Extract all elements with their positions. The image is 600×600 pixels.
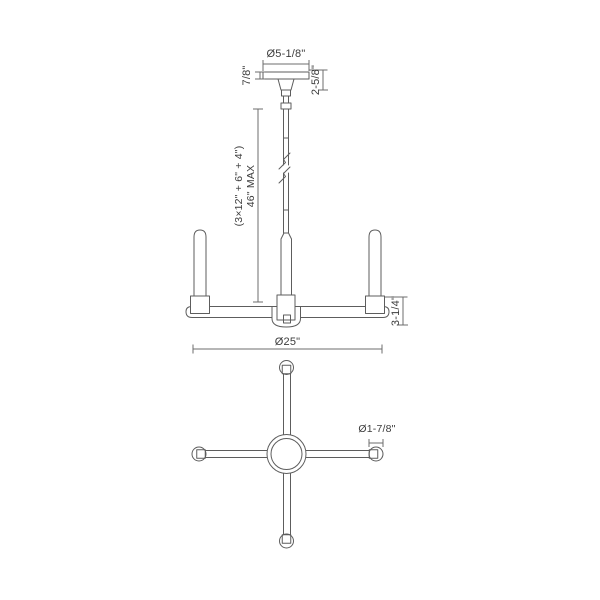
chandelier-dimension-drawing: Ø5-1/8" 7/8" 2-5/8" 46" MAX <box>0 0 600 600</box>
center-candle <box>281 233 292 295</box>
dim-arm-end-diameter: Ø1-7/8" <box>358 423 395 447</box>
arm-end-diameter-label: Ø1-7/8" <box>358 423 395 435</box>
plan-ball-bottom <box>280 534 294 548</box>
plan-ball-right <box>369 447 383 461</box>
canopy-stem <box>278 79 294 90</box>
right-socket <box>366 296 385 314</box>
plan-view: Ø1-7/8" <box>192 361 396 549</box>
canopy-plate <box>263 72 309 79</box>
elevation-view: Ø5-1/8" 7/8" 2-5/8" 46" MAX <box>186 48 408 353</box>
center-socket <box>277 295 295 320</box>
canopy-drop-label: 2-5/8" <box>310 65 322 95</box>
drawing-canvas: Ø5-1/8" 7/8" 2-5/8" 46" MAX <box>0 0 600 600</box>
plan-ball-top <box>280 361 294 375</box>
suspension-rod <box>279 96 290 233</box>
canopy-thickness-label: 7/8" <box>241 66 253 86</box>
canopy <box>263 72 309 109</box>
rod-max-label-line1: 46" MAX <box>245 165 257 207</box>
rod-max-label-line2: (3×12" + 6" + 4") <box>233 146 245 227</box>
hang-straight-collar <box>281 103 291 109</box>
plan-ball-left <box>192 447 206 461</box>
plan-arm-top <box>284 368 291 436</box>
canopy-collar <box>282 90 291 96</box>
dim-rod-length: 46" MAX (3×12" + 6" + 4") <box>233 109 263 302</box>
right-candle <box>369 230 381 296</box>
canopy-diameter-label: Ø5-1/8" <box>267 48 306 60</box>
plan-hub-outer-ring <box>267 435 306 474</box>
left-candle <box>194 230 206 296</box>
dim-canopy-drop: 2-5/8" <box>309 65 328 95</box>
fixture-diameter-label: Ø25" <box>275 336 301 348</box>
left-socket <box>191 296 210 314</box>
body-height-label: 3-1/4" <box>390 296 402 326</box>
dim-canopy-thickness: 7/8" <box>241 66 265 86</box>
dim-fixture-diameter: Ø25" <box>193 336 382 353</box>
dim-canopy-diameter: Ø5-1/8" <box>263 48 309 71</box>
